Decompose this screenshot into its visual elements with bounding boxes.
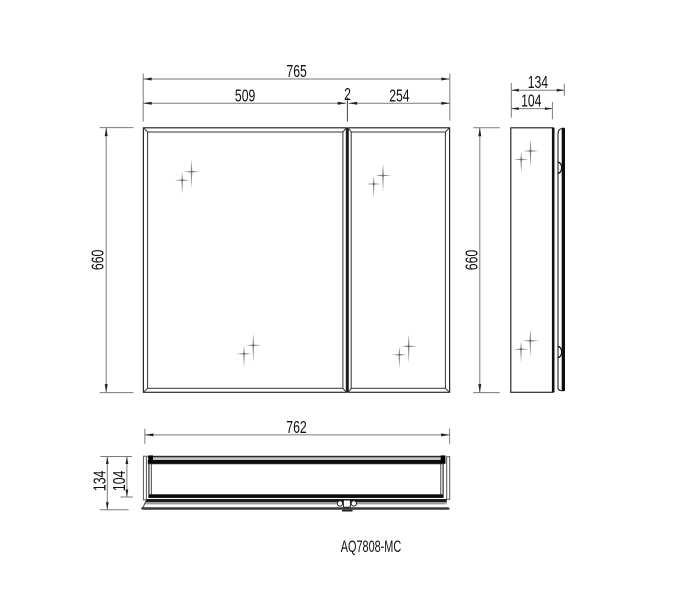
svg-text:660: 660 <box>462 250 482 270</box>
svg-text:254: 254 <box>389 86 410 106</box>
svg-text:AQ7808-MC: AQ7808-MC <box>341 536 401 555</box>
svg-text:765: 765 <box>286 62 306 82</box>
svg-text:134: 134 <box>90 470 110 491</box>
svg-text:104: 104 <box>110 470 130 491</box>
svg-text:134: 134 <box>528 73 549 93</box>
svg-text:509: 509 <box>235 86 255 106</box>
svg-text:762: 762 <box>286 418 306 438</box>
svg-text:660: 660 <box>88 250 108 270</box>
svg-text:2: 2 <box>344 85 351 105</box>
svg-text:104: 104 <box>521 91 542 111</box>
